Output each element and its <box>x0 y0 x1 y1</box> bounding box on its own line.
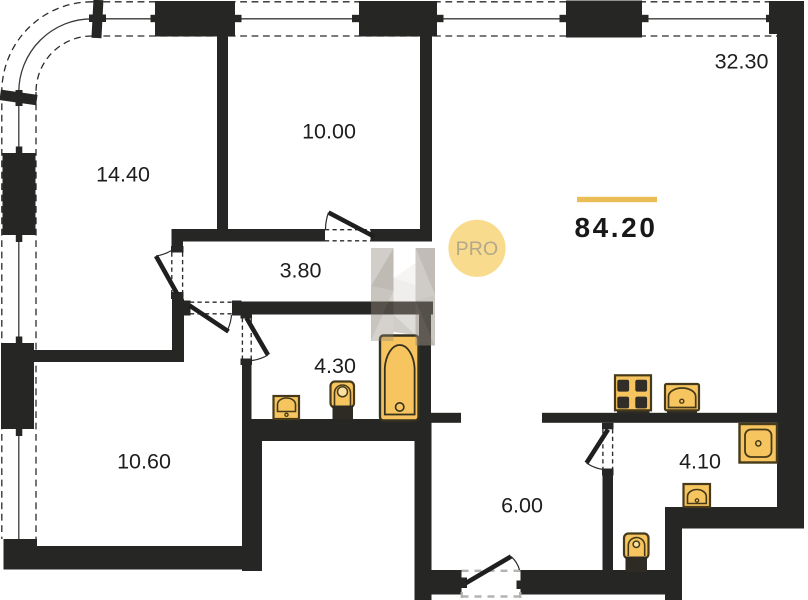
svg-text:PRO: PRO <box>456 238 499 260</box>
svg-text:10.60: 10.60 <box>117 450 171 474</box>
svg-text:6.00: 6.00 <box>501 494 543 518</box>
svg-text:32.30: 32.30 <box>715 50 769 74</box>
svg-text:3.80: 3.80 <box>280 259 322 283</box>
svg-text:4.10: 4.10 <box>679 450 721 474</box>
svg-text:84.20: 84.20 <box>574 212 657 243</box>
svg-text:14.40: 14.40 <box>96 163 150 187</box>
svg-text:4.30: 4.30 <box>314 354 356 378</box>
svg-text:10.00: 10.00 <box>302 120 356 144</box>
